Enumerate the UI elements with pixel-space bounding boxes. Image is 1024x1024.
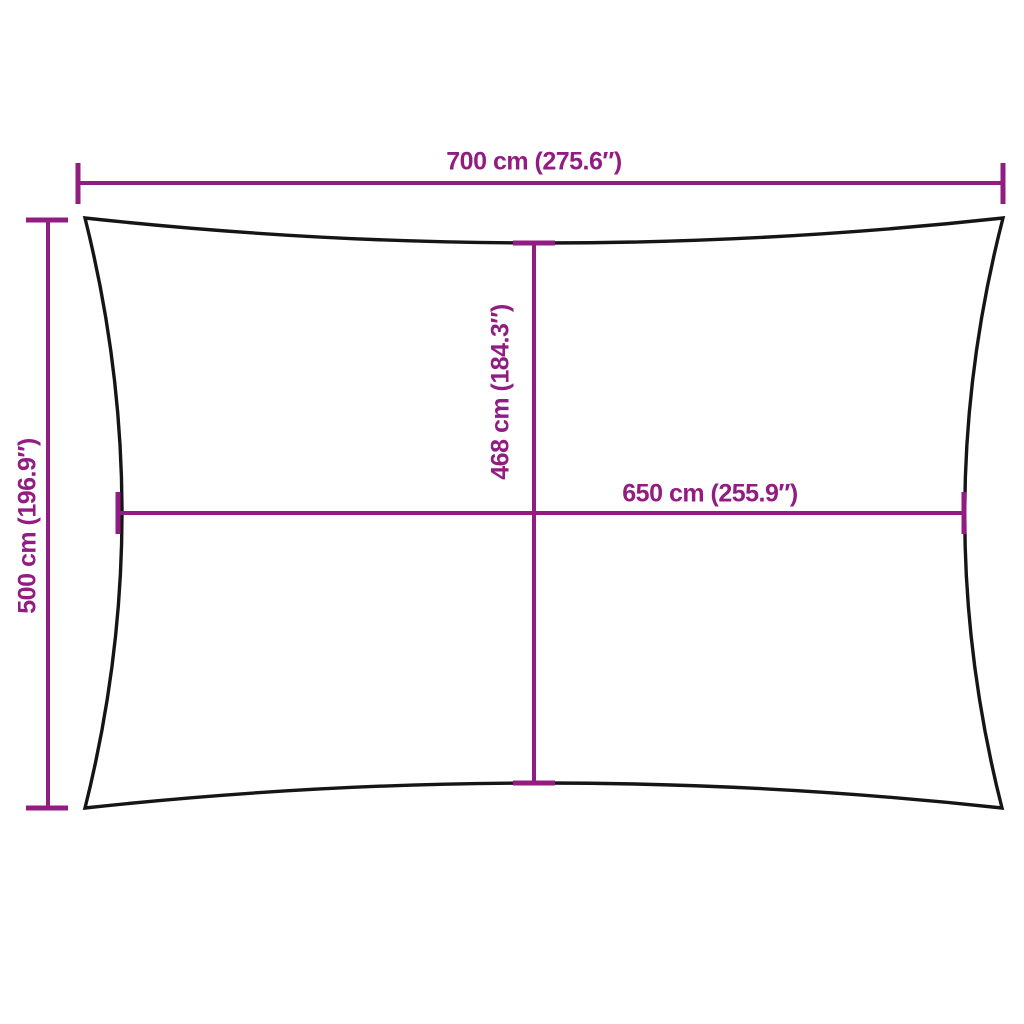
dim-label-left-height: 500 cm (196.9″) — [14, 438, 43, 613]
dim-label-top-width: 700 cm (275.6″) — [446, 148, 621, 177]
dimension-diagram: 700 cm (275.6″) 500 cm (196.9″) 468 cm (… — [0, 0, 1024, 1024]
dim-label-center-width: 650 cm (255.9″) — [622, 480, 797, 509]
dim-label-center-height: 468 cm (184.3″) — [487, 304, 516, 479]
